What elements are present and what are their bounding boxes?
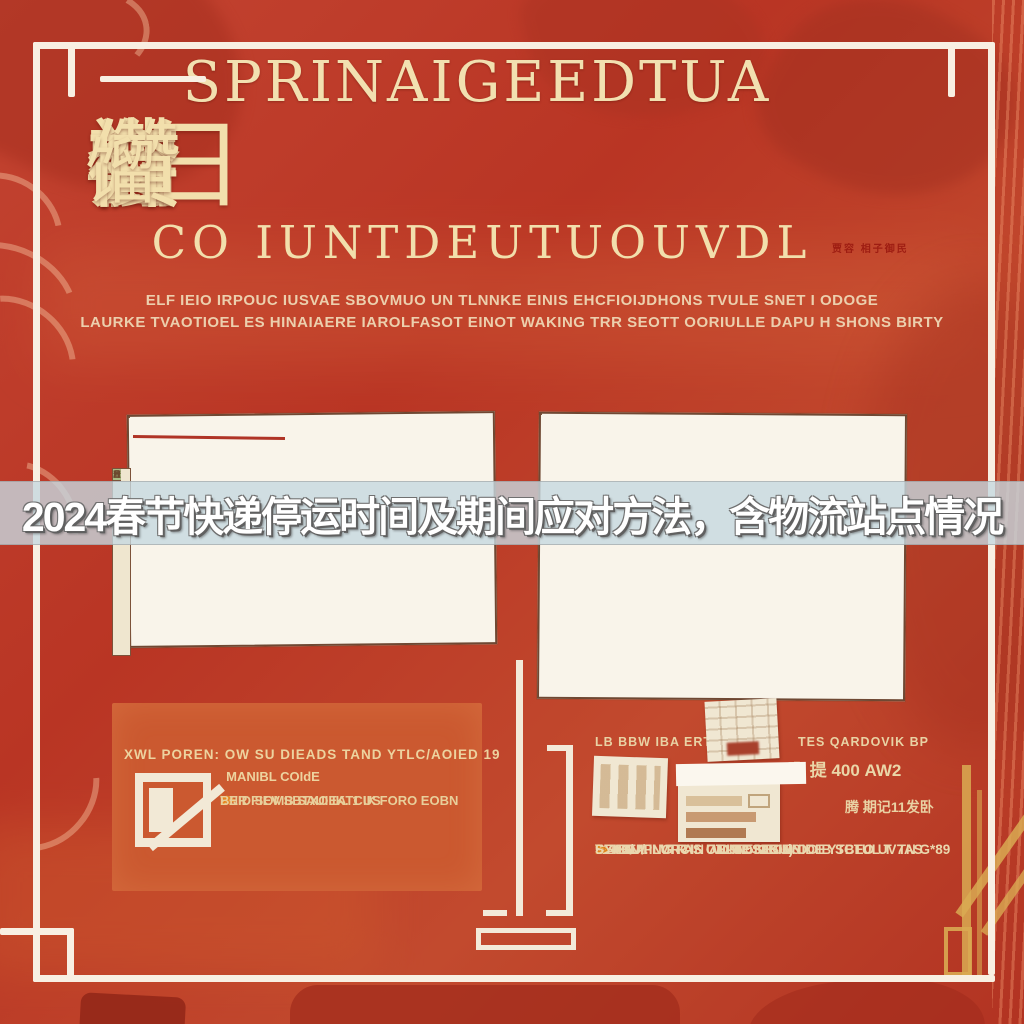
seal-text: 贾容 相子御民 <box>832 240 909 255</box>
background-shape <box>79 992 186 1024</box>
poster-image: SPRINAIGEEDTUA 冇喾4日褛介儹馏 CO IUNTDEUTUOUVD… <box>0 0 1024 1024</box>
panel-heading: XWL POREN: OW SU DIEADS TAND YTLC/AOIED … <box>124 747 472 762</box>
diagram-white-bar <box>676 762 806 786</box>
diagram-sub-stat: 腾 期记11发卧 <box>845 797 934 817</box>
pillar-tick <box>546 910 568 916</box>
pillar-tick <box>547 745 573 751</box>
ruler-square-icon <box>135 773 211 847</box>
frame-corner-bracket <box>67 928 74 982</box>
frame-corner-bracket <box>68 42 75 97</box>
card-row-bar <box>686 796 742 806</box>
strip-cell: 卜 <box>113 469 121 481</box>
calendar-cell <box>129 417 130 418</box>
headline-title: 2024春节快递停运时间及期间应对方法，含物流站点情况 <box>22 483 1002 543</box>
pillar-line <box>516 660 523 916</box>
tagline-line2: LAURKE TVAOTIOEL ES HINAIAERE IAROLFASOT… <box>0 314 1024 331</box>
frame-top-line <box>33 42 991 49</box>
frame-corner-bracket <box>0 928 74 935</box>
diagram-card-top <box>704 698 779 762</box>
tagline-line1: ELF IEIO IRPOUC IUSVAE SBOVMUO UN TLNNKE… <box>0 292 1024 309</box>
card-bars <box>599 764 660 810</box>
diagram-card-left <box>592 756 668 819</box>
card-row-bar <box>686 812 756 822</box>
subtitle: CO IUNTDEUTUOUVDL <box>0 216 964 269</box>
pillar-base-rectangle <box>476 928 576 950</box>
card-row-bar <box>686 828 746 838</box>
gold-rectangle <box>944 927 972 976</box>
calendar-table-right: 888188818121E48897了了88了8丁8招能鹏银行鹏列偿鹏多86鹏1… <box>537 412 907 702</box>
pillar-line <box>566 748 573 916</box>
frame-dash <box>100 76 206 82</box>
pillar-tick <box>483 910 507 916</box>
frame-bottom-line <box>33 975 995 982</box>
card-row-box <box>748 794 770 808</box>
note-text: GU/ ILVTR IN 7 DNI 5SHOES <box>621 840 801 859</box>
headline-banner: 2024春节快递停运时间及期间应对方法，含物流站点情况 <box>0 481 1024 545</box>
hanzi-char: 馏 <box>85 136 157 214</box>
calendar-cell <box>541 414 542 415</box>
diagram-right-label: TES QARDOVIK BP <box>798 735 929 749</box>
brush-stroke <box>0 705 124 875</box>
info-panel: XWL POREN: OW SU DIEADS TAND YTLC/AOIED … <box>112 703 482 891</box>
card-red-smudge <box>727 741 760 756</box>
background-shape <box>290 985 680 1024</box>
gold-strip <box>977 790 982 976</box>
frame-corner-bracket <box>948 42 955 97</box>
panel-bullet-text: BEID SOMB SAUIEATCUS <box>220 793 381 808</box>
hanzi-title: 冇喾4日褛介儹馏 <box>85 104 939 214</box>
